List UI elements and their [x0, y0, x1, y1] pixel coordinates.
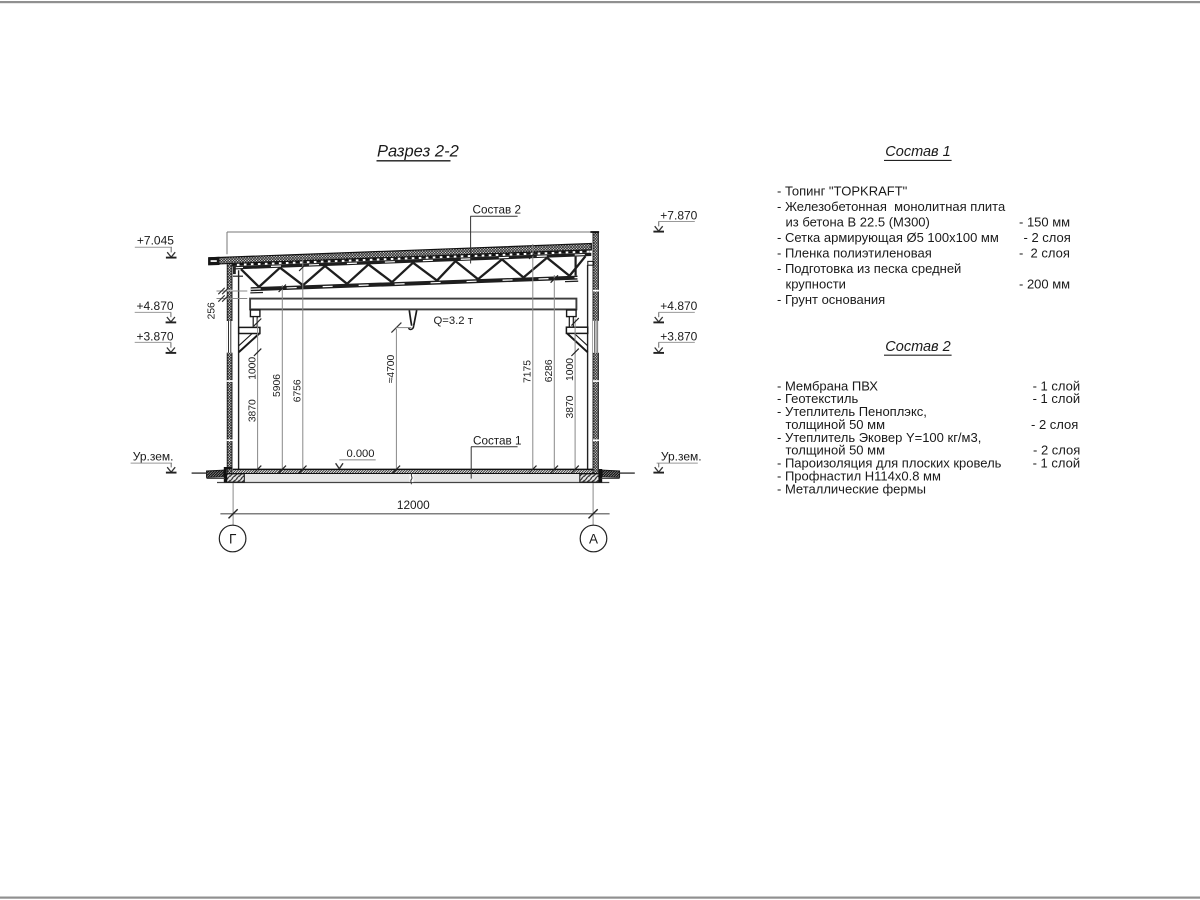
svg-text:- 200 мм: - 200 мм [1019, 276, 1070, 291]
svg-text:+3.870: +3.870 [137, 330, 174, 344]
svg-text:Разрез 2-2: Разрез 2-2 [377, 142, 459, 160]
svg-text:+4.870: +4.870 [660, 299, 697, 313]
svg-text:крупности: крупности [786, 276, 846, 291]
svg-text:- 2 слоя: - 2 слоя [1024, 230, 1071, 245]
svg-text:- Подготовка из песка средней: - Подготовка из песка средней [777, 261, 961, 276]
svg-text:+4.870: +4.870 [137, 299, 174, 313]
svg-text:- 150 мм: - 150 мм [1019, 215, 1070, 230]
svg-text:Ур.зем.: Ур.зем. [133, 449, 174, 463]
svg-text:из бетона В 22.5 (М300): из бетона В 22.5 (М300) [786, 215, 930, 230]
svg-text:1000: 1000 [565, 358, 576, 381]
svg-text:- 1 слой: - 1 слой [1033, 456, 1081, 471]
svg-text:7175: 7175 [523, 360, 534, 383]
svg-text:- Сетка армирующая Ø5 100х100: - Сетка армирующая Ø5 100х100 мм [777, 230, 999, 245]
svg-text:Состав 1: Состав 1 [885, 144, 950, 160]
svg-text:+7.870: +7.870 [660, 209, 697, 223]
svg-text:Q=3.2 т: Q=3.2 т [434, 315, 473, 327]
svg-text:+3.870: +3.870 [660, 330, 697, 344]
svg-text:- Пленка полиэтиленовая: - Пленка полиэтиленовая [777, 245, 932, 260]
svg-text:6286: 6286 [544, 359, 555, 382]
svg-text:- Металлические фермы: - Металлические фермы [777, 481, 926, 496]
svg-text:А: А [589, 531, 598, 546]
svg-text:3870: 3870 [565, 395, 576, 418]
svg-text:Ур.зем.: Ур.зем. [661, 449, 702, 463]
svg-text:0.000: 0.000 [347, 448, 375, 460]
svg-text:Состав 2: Состав 2 [885, 339, 950, 355]
svg-text:- Топинг "TOPKRAFT": - Топинг "TOPKRAFT" [777, 184, 908, 199]
svg-text:≈4700: ≈4700 [386, 354, 397, 383]
svg-text:Г: Г [229, 531, 237, 546]
svg-text:6756: 6756 [293, 379, 304, 402]
svg-text:12000: 12000 [397, 498, 430, 512]
svg-text:- 2 слоя: - 2 слоя [1031, 417, 1078, 432]
svg-text:- 2 слоя: - 2 слоя [1019, 245, 1070, 260]
svg-text:Состав 2: Состав 2 [473, 203, 521, 216]
svg-text:Состав 1: Состав 1 [473, 434, 521, 447]
svg-text:- Грунт основания: - Грунт основания [777, 292, 885, 307]
svg-text:1000: 1000 [247, 357, 258, 380]
svg-text:+7.045: +7.045 [137, 234, 174, 248]
svg-text:- 1 слой: - 1 слой [1033, 391, 1081, 406]
svg-text:5906: 5906 [272, 374, 283, 397]
svg-text:- Железобетонная монолитная п: - Железобетонная монолитная плита [777, 199, 1006, 214]
svg-text:3870: 3870 [247, 399, 258, 422]
svg-text:256: 256 [206, 302, 217, 319]
